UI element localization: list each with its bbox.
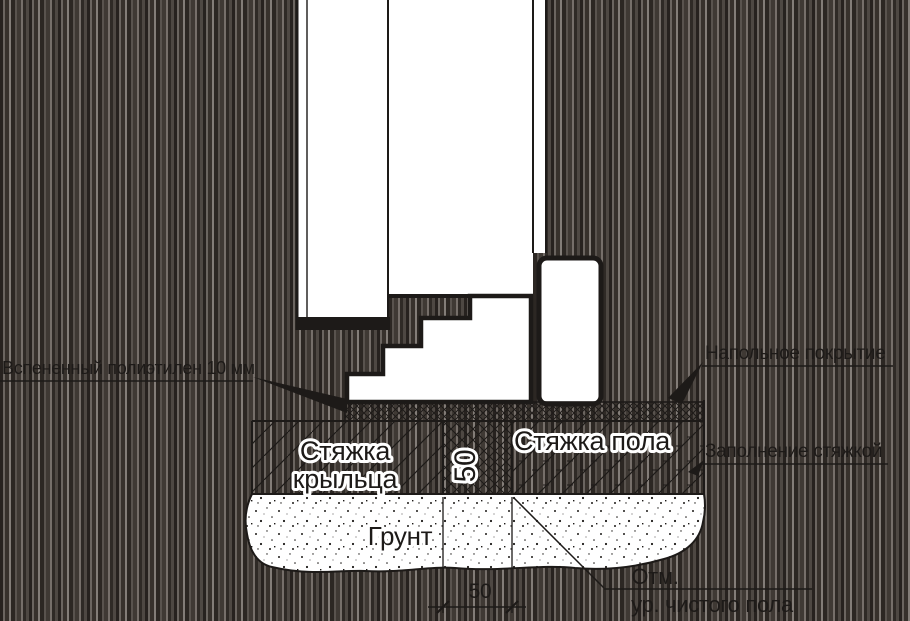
ground-label: Грунт — [368, 521, 433, 551]
floor-covering-label: Напольное покрытие — [705, 343, 886, 364]
bottom-dimension-text: 50 — [469, 580, 492, 603]
door-panel — [388, 0, 533, 297]
floor-screed-label: Стяжка пола — [514, 426, 671, 456]
door-leaf — [296, 0, 388, 318]
frame-upper-sliver — [533, 0, 547, 253]
frame-jamb — [539, 258, 601, 404]
porch-screed-label-line2: крыльца — [293, 464, 399, 494]
door-assembly — [296, 0, 547, 330]
elevation-label-line1: Отм. — [631, 564, 678, 589]
porch-screed-label-line1: Стяжка — [300, 436, 391, 466]
elevation-label-line2: ур. чистого пола — [631, 592, 794, 617]
threshold-detail-drawing: 50 Отм. ур. чистого пола Вспененный поли… — [0, 0, 910, 621]
leaf-bottom-bar — [296, 317, 390, 330]
ground-area — [246, 494, 705, 572]
gap-dimension-text: 50 — [449, 450, 482, 483]
screed-filling-label: Заполнение стяжкой — [705, 441, 882, 462]
foam-pad-label: Вспененный полиэтилен 10 мм — [2, 358, 255, 378]
foam-pad-band — [345, 402, 703, 421]
